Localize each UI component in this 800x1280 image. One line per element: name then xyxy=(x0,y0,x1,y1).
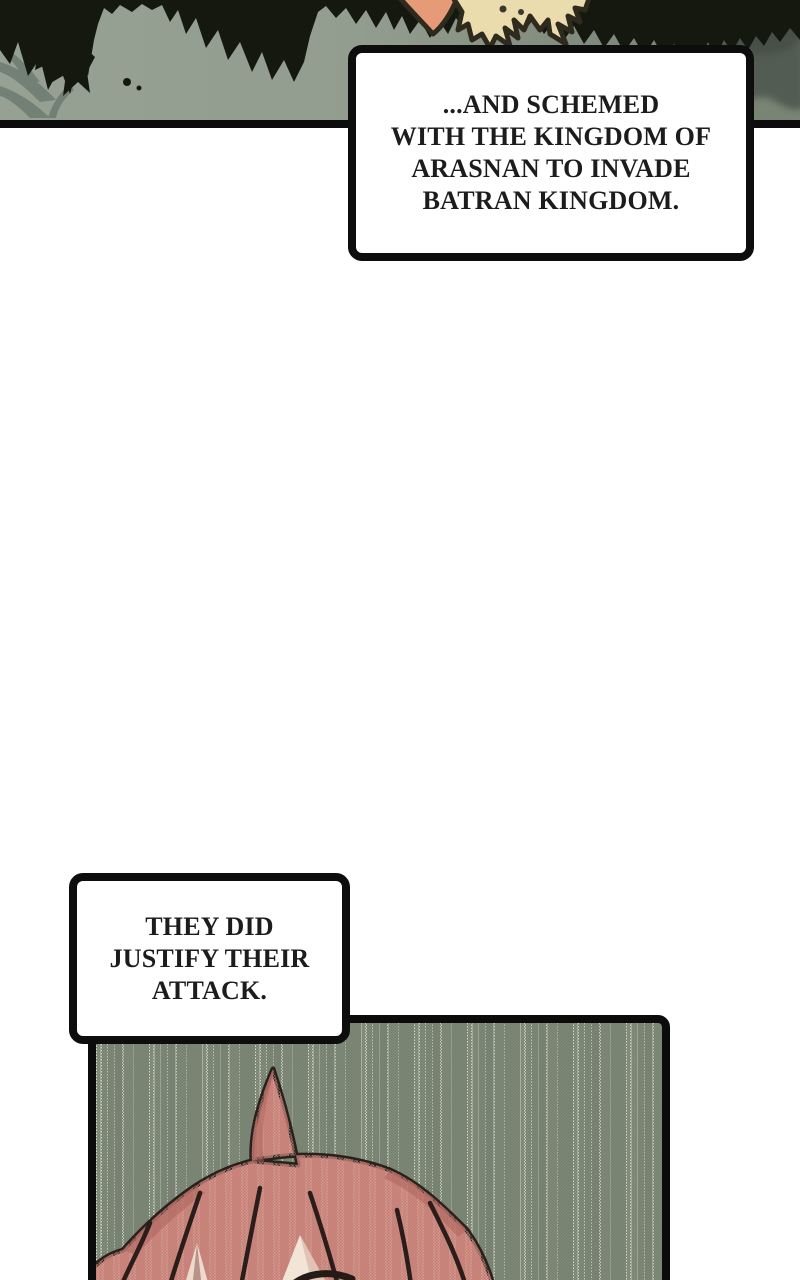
narration-box-justify: THEY DID JUSTIFY THEIR ATTACK. xyxy=(69,873,350,1044)
narration-line: WITH THE KINGDOM OF xyxy=(356,121,746,153)
narration-line: JUSTIFY THEIR xyxy=(77,943,342,975)
creature-cream-part xyxy=(452,0,590,48)
pink-hair xyxy=(90,1069,493,1280)
comic-page: ...AND SCHEMED WITH THE KINGDOM OF ARASN… xyxy=(0,0,800,1280)
narration-line: ATTACK. xyxy=(77,975,342,1007)
rain-panel xyxy=(88,1015,670,1280)
narration-line: BATRAN KINGDOM. xyxy=(356,185,746,217)
narration-line: ...AND SCHEMED xyxy=(356,89,746,121)
character-head-art xyxy=(88,1015,670,1280)
narration-line: THEY DID xyxy=(77,911,342,943)
narration-box-schemed: ...AND SCHEMED WITH THE KINGDOM OF ARASN… xyxy=(348,45,754,261)
narration-line: ARASNAN TO INVADE xyxy=(356,153,746,185)
hidden-creature xyxy=(398,0,590,48)
